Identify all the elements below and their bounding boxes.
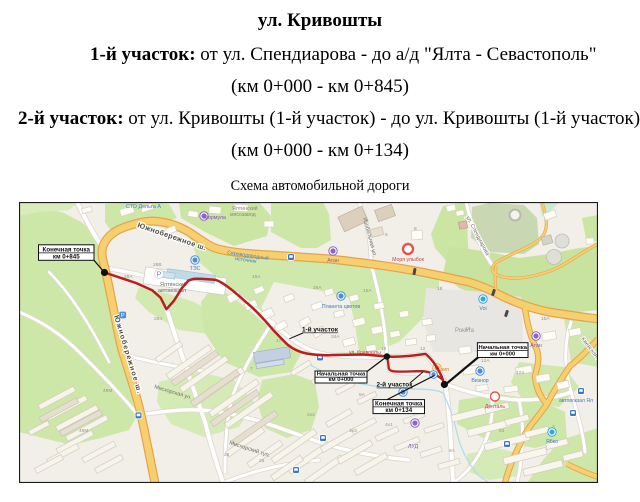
svg-text:Ябко: Ябко xyxy=(546,439,558,445)
svg-text:P: P xyxy=(157,272,162,279)
svg-text:8: 8 xyxy=(414,226,417,232)
svg-text:Ялтинский: Ялтинский xyxy=(232,205,258,212)
svg-text:Моря улыбок: Моря улыбок xyxy=(392,257,424,263)
svg-text:64: 64 xyxy=(499,428,505,434)
svg-text:49М: 49М xyxy=(79,428,88,434)
svg-text:15А: 15А xyxy=(363,288,372,294)
svg-text:7: 7 xyxy=(250,366,253,372)
svg-text:4х1: 4х1 xyxy=(385,422,393,428)
svg-text:16: 16 xyxy=(381,346,387,352)
svg-text:28В: 28В xyxy=(153,262,162,268)
svg-text:ЛУД: ЛУД xyxy=(408,444,418,450)
svg-text:49М: 49М xyxy=(103,388,112,394)
svg-text:P: P xyxy=(121,313,125,319)
svg-text:Начальная точка: Начальная точка xyxy=(478,345,527,351)
svg-text:Планета цветов: Планета цветов xyxy=(322,304,360,310)
svg-text:мясозавод: мясозавод xyxy=(230,212,256,218)
svg-text:СТО Дельта А: СТО Дельта А xyxy=(126,204,161,210)
svg-text:зип: зип xyxy=(441,367,449,373)
svg-text:3: 3 xyxy=(552,424,555,430)
svg-text:4х3: 4х3 xyxy=(349,428,357,434)
svg-text:автовокзал Ял: автовокзал Ял xyxy=(559,398,593,404)
svg-text:Атан: Атан xyxy=(530,343,542,349)
svg-text:Визнор: Визнор xyxy=(471,378,488,384)
svg-text:2-й участок: 2-й участок xyxy=(377,381,414,389)
svg-text:2х2: 2х2 xyxy=(307,412,315,418)
svg-text:34А: 34А xyxy=(331,334,340,340)
svg-text:28: 28 xyxy=(224,452,230,458)
svg-text:Voi: Voi xyxy=(479,306,486,312)
svg-text:км 0+000: км 0+000 xyxy=(490,352,515,358)
svg-text:км 0+845: км 0+845 xyxy=(53,254,80,261)
svg-text:5: 5 xyxy=(385,232,388,238)
svg-text:1-й участок: 1-й участок xyxy=(302,326,339,334)
svg-text:Конечная точка: Конечная точка xyxy=(43,246,91,253)
svg-text:км 0+134: км 0+134 xyxy=(385,407,412,414)
svg-text:25А: 25А xyxy=(313,285,322,291)
svg-text:5А: 5А xyxy=(449,448,456,454)
svg-text:26: 26 xyxy=(259,458,265,464)
svg-text:284: 284 xyxy=(154,316,162,322)
svg-text:18: 18 xyxy=(437,286,443,292)
svg-text:5А: 5А xyxy=(359,392,366,398)
svg-text:ТЭС: ТЭС xyxy=(190,266,201,272)
svg-text:Формула: Формула xyxy=(204,215,226,221)
svg-text:15А: 15А xyxy=(541,316,550,322)
svg-text:124: 124 xyxy=(516,370,524,376)
svg-text:13: 13 xyxy=(465,326,471,332)
svg-text:12: 12 xyxy=(420,346,426,352)
svg-text:км 0+000: км 0+000 xyxy=(328,377,353,383)
svg-text:Денталь: Денталь xyxy=(485,404,505,410)
svg-text:Атан: Атан xyxy=(327,258,339,264)
svg-text:15А: 15А xyxy=(252,274,261,280)
svg-text:12А: 12А xyxy=(481,358,490,364)
